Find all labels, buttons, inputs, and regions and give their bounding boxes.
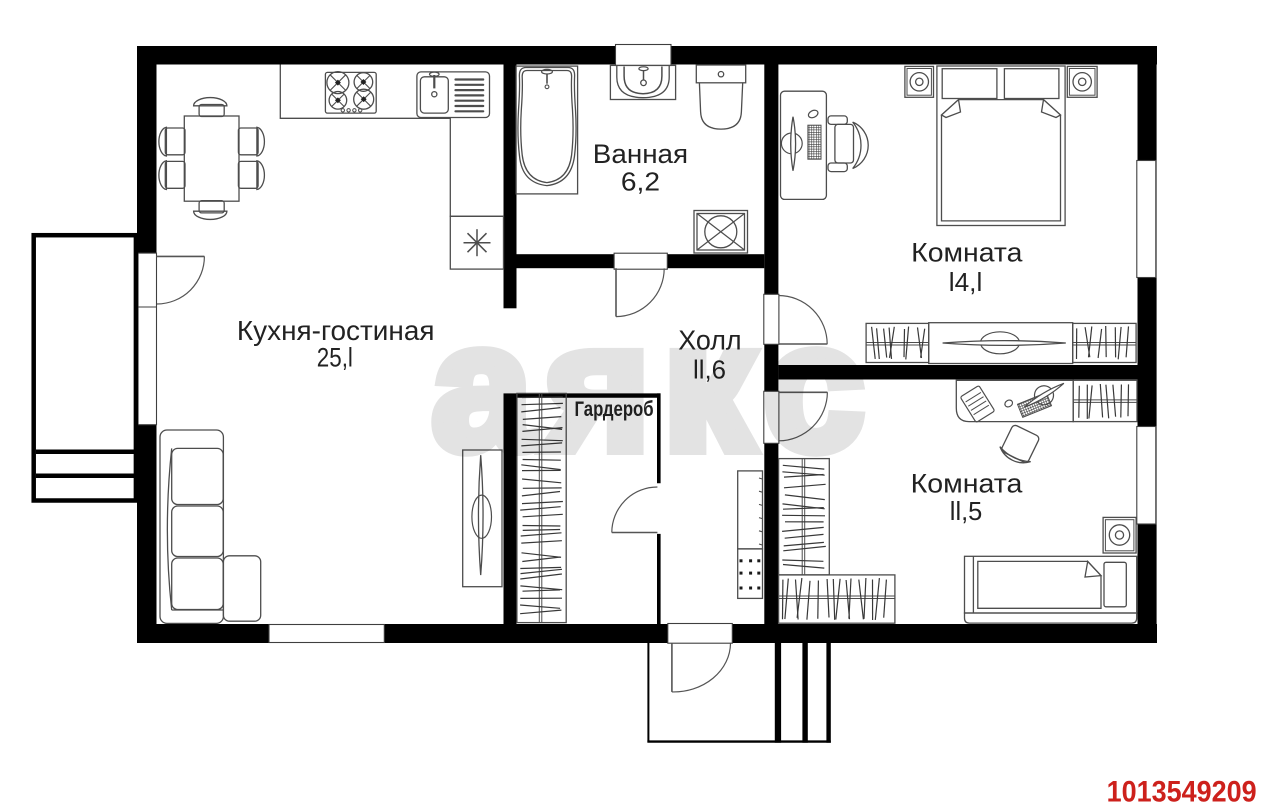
svg-text:1013549209: 1013549209 — [1107, 775, 1257, 808]
svg-text:Комната: Комната — [911, 237, 1023, 267]
svg-text:ll,5: ll,5 — [950, 496, 983, 526]
svg-text:Кухня-гостиная: Кухня-гостиная — [237, 314, 435, 346]
svg-text:аякс: аякс — [432, 287, 877, 488]
svg-text:Комната: Комната — [911, 468, 1024, 498]
svg-text:6,2: 6,2 — [621, 167, 660, 197]
svg-text:l4,l: l4,l — [949, 267, 983, 297]
svg-text:25,l: 25,l — [317, 343, 353, 373]
svg-text:Ванная: Ванная — [593, 139, 688, 169]
